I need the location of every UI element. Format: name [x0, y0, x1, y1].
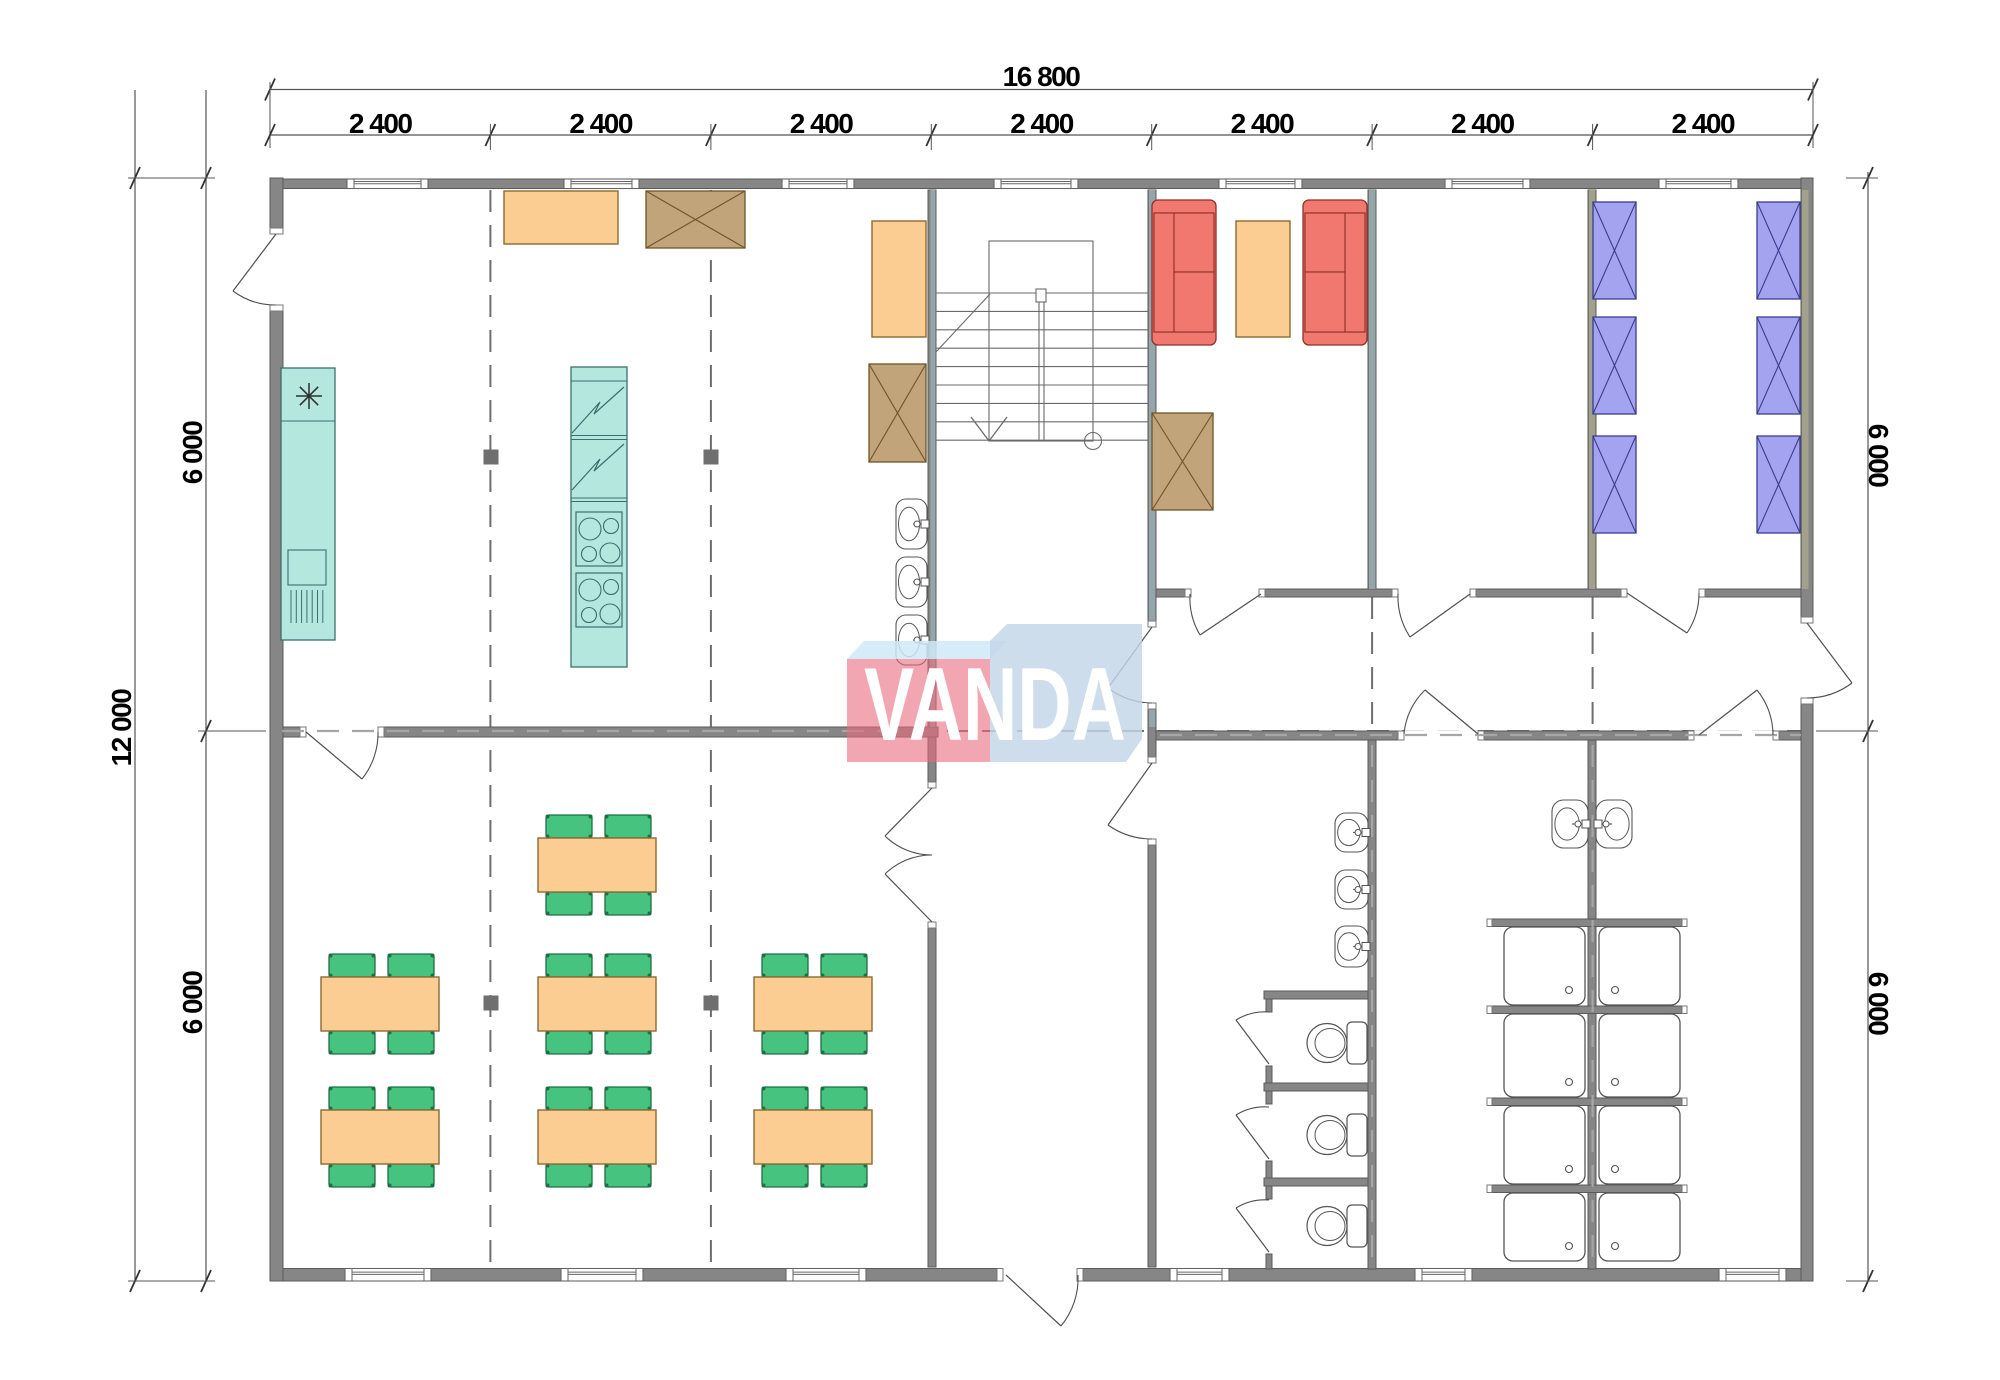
svg-text:2 400: 2 400: [1451, 108, 1514, 139]
svg-text:2 400: 2 400: [1010, 108, 1073, 139]
svg-text:2 400: 2 400: [569, 108, 632, 139]
svg-text:2 400: 2 400: [790, 108, 853, 139]
svg-text:6 000: 6 000: [177, 971, 208, 1034]
svg-text:6 000: 6 000: [1863, 424, 1894, 487]
svg-text:2 400: 2 400: [1231, 108, 1294, 139]
svg-text:2 400: 2 400: [1672, 108, 1735, 139]
svg-text:2 400: 2 400: [349, 108, 412, 139]
svg-text:VANDA: VANDA: [864, 647, 1126, 763]
svg-text:6 000: 6 000: [1863, 972, 1894, 1035]
svg-text:16 800: 16 800: [1003, 61, 1081, 92]
svg-text:12 000: 12 000: [106, 689, 137, 767]
svg-text:6 000: 6 000: [177, 421, 208, 484]
